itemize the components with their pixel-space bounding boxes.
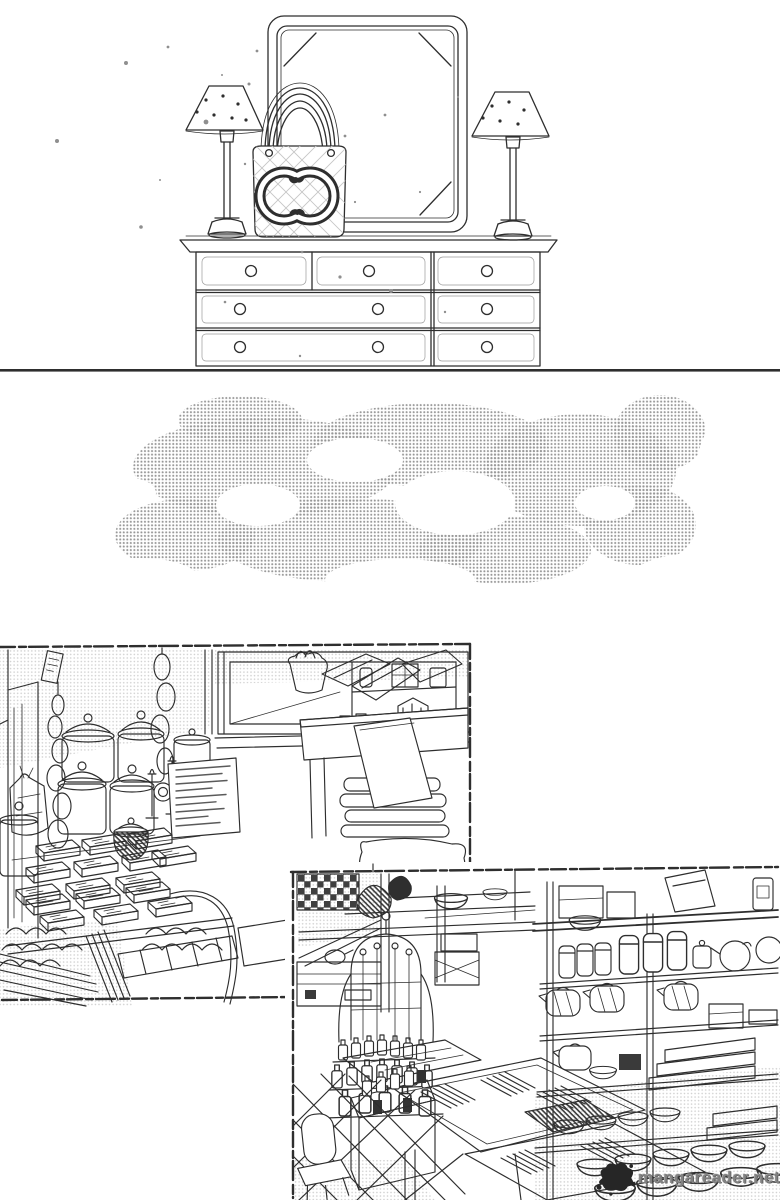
panel-shop-right <box>285 862 780 1200</box>
manga-page: mangareader.net <box>0 0 780 1200</box>
dresser <box>180 236 557 366</box>
watermark: mangareader.net <box>594 1156 780 1200</box>
drawer-knobs <box>235 266 493 353</box>
lampshade-dots <box>195 94 247 121</box>
lamp-right <box>472 92 549 240</box>
quilted-cc-tote-bag <box>160 83 396 250</box>
panel-divider-line <box>0 369 780 372</box>
lamp-left <box>186 86 263 238</box>
cloud-tone-strip <box>0 375 780 605</box>
panel-dresser <box>0 0 780 375</box>
watermark-text: mangareader.net <box>638 1168 780 1188</box>
menu-sign-board <box>168 758 240 838</box>
plaid-awning <box>297 874 359 910</box>
mirror-corner-accent <box>284 33 316 66</box>
watermark-logo-icon <box>594 1156 638 1200</box>
